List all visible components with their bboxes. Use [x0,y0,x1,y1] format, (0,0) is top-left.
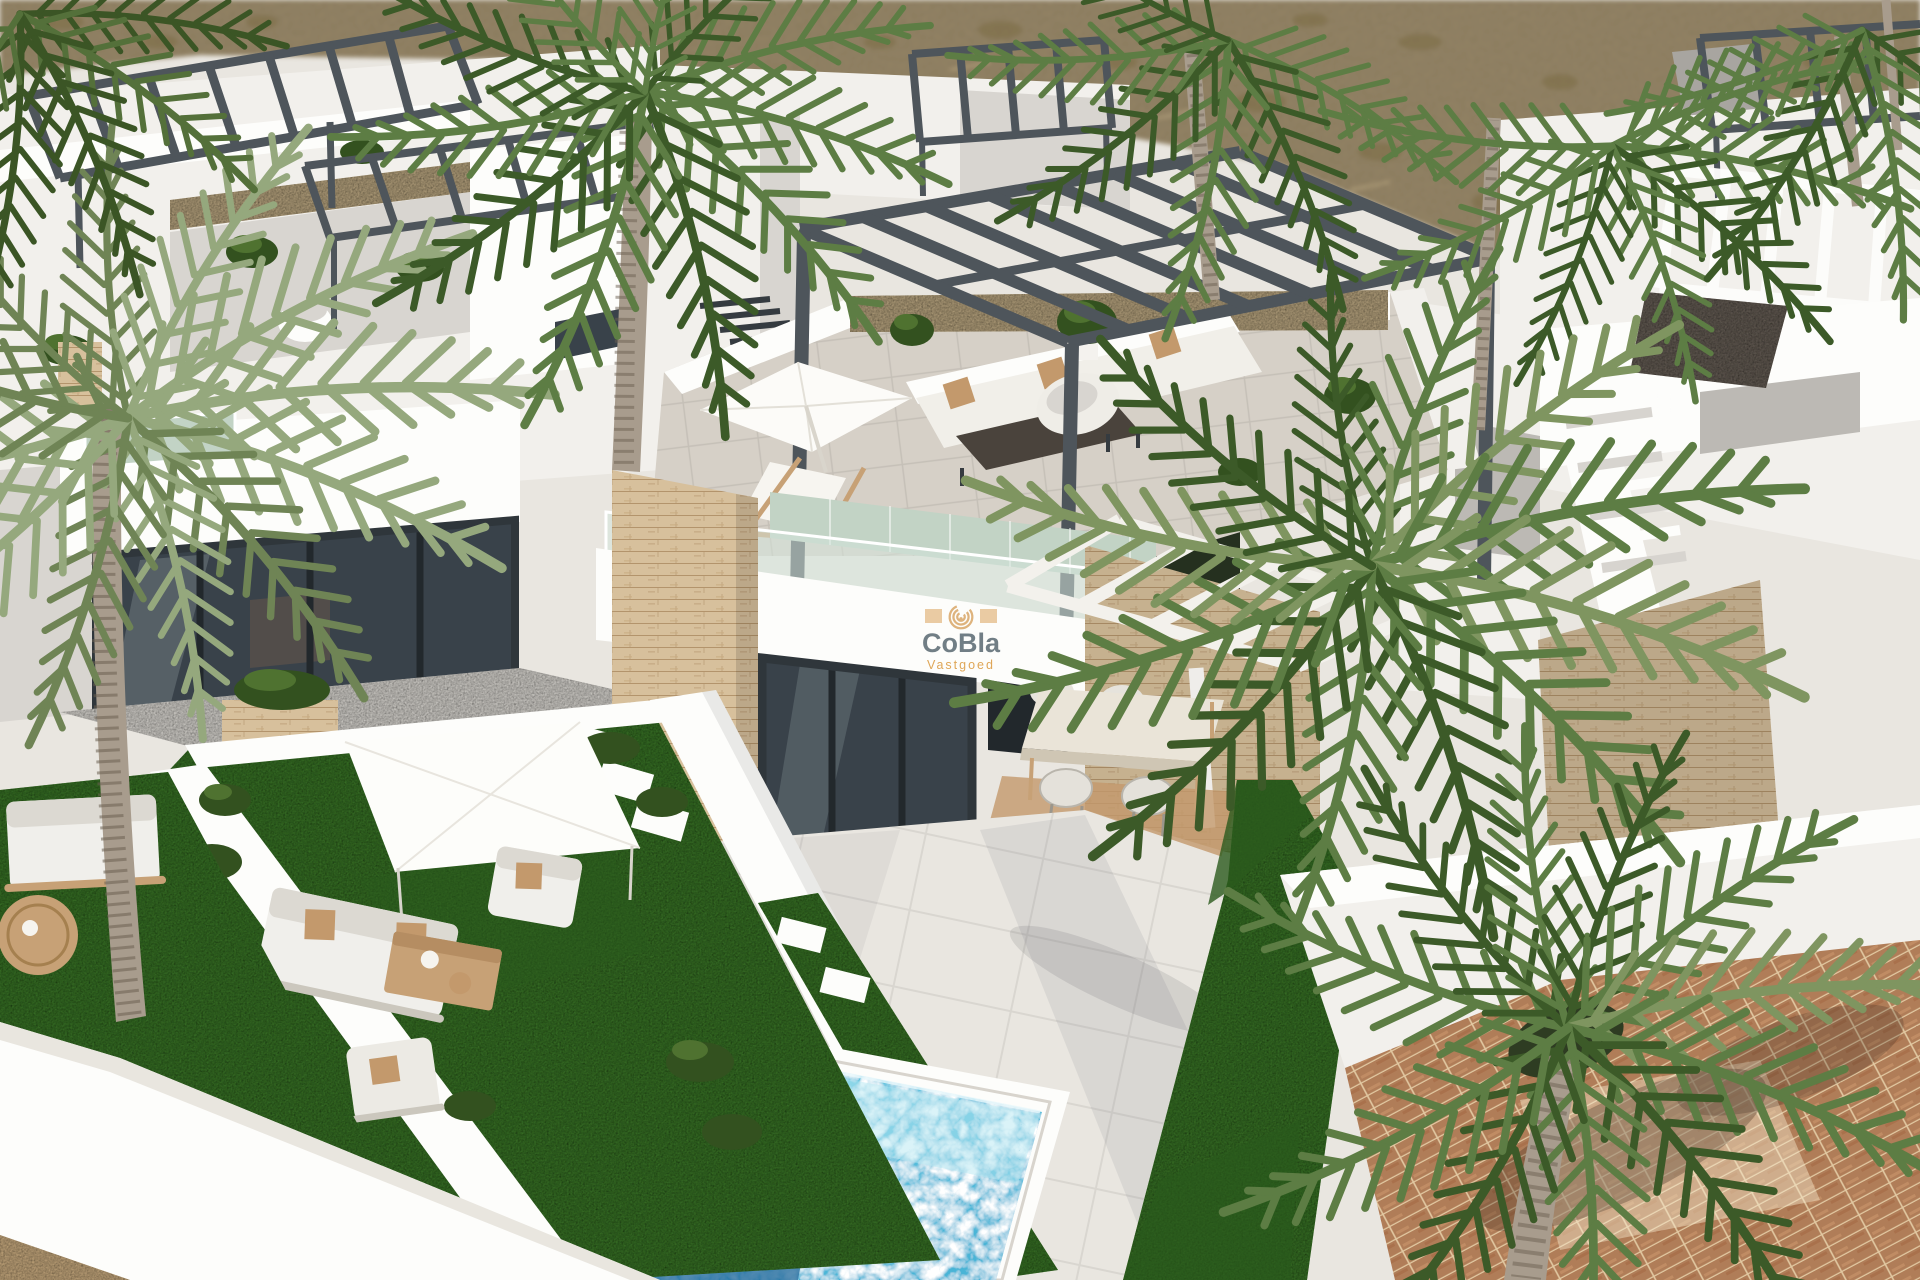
far-left-sofa [0,794,166,892]
render-image: CoBla Vastgoed [0,0,1920,1280]
round-side-table [0,895,78,975]
glass-doors-main [762,658,972,850]
scene-svg [0,0,1920,1280]
